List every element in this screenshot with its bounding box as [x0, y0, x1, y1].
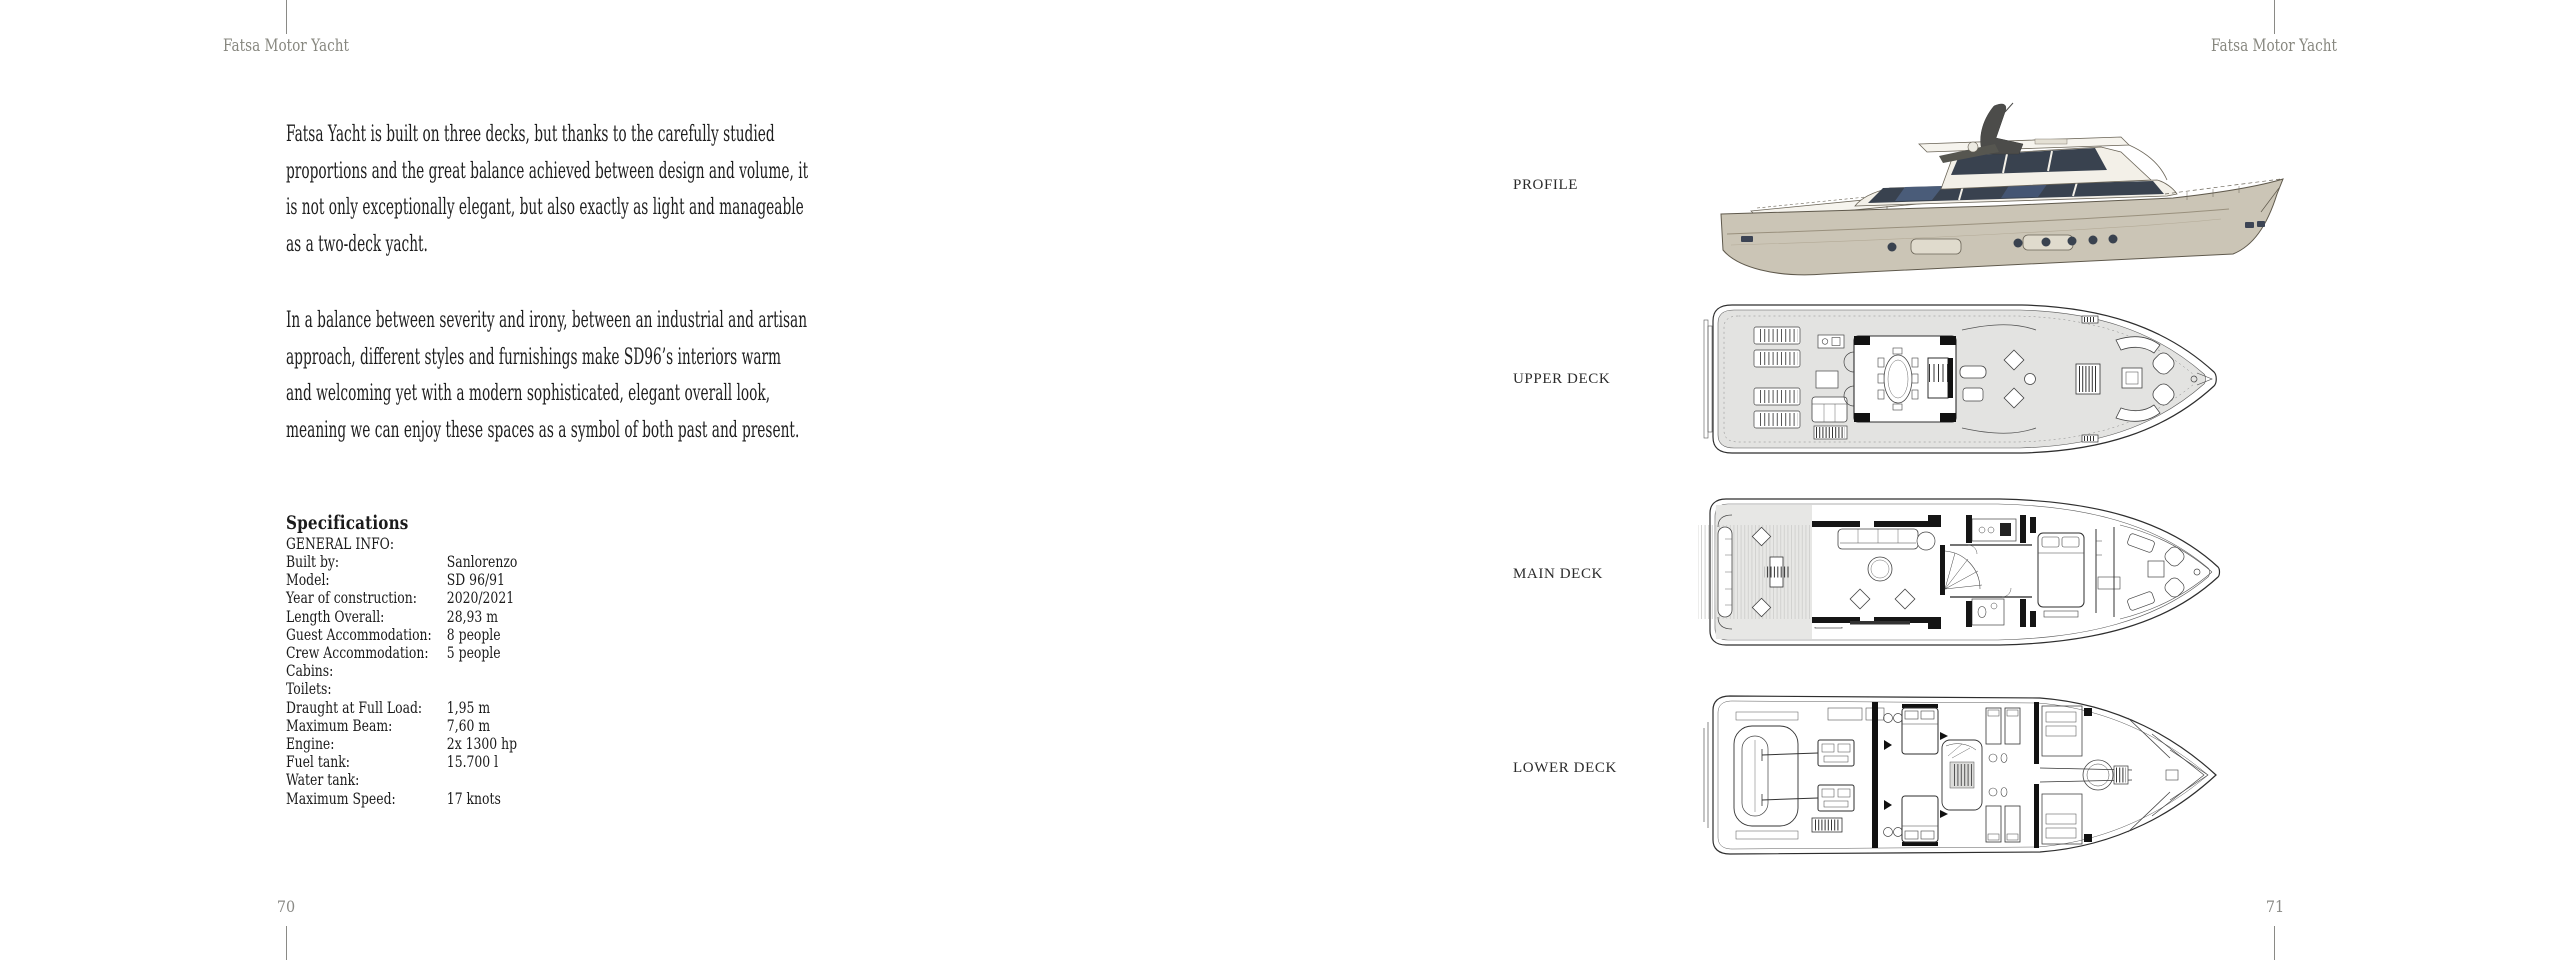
- upper-deck-plan: [1702, 300, 2225, 458]
- spec-row: Water tank:: [286, 771, 517, 789]
- paragraph-2: In a balance between severity and irony,…: [286, 302, 808, 448]
- paragraph-1: Fatsa Yacht is built on three decks, but…: [286, 116, 808, 262]
- spec-row: Draught at Full Load:1,95 m: [286, 699, 517, 717]
- spec-row: Fuel tank:15.700 l: [286, 753, 517, 771]
- spec-value: 2020/2021: [447, 589, 514, 607]
- specifications-title: Specifications: [286, 512, 517, 535]
- spec-value: 8 people: [447, 626, 501, 644]
- spec-row: Maximum Beam:7,60 m: [286, 717, 517, 735]
- spec-label: Water tank:: [286, 771, 447, 789]
- running-header-right: Fatsa Motor Yacht: [2211, 36, 2337, 56]
- spec-row: Model:SD 96/91: [286, 571, 517, 589]
- crop-mark-bottom-left: [286, 926, 287, 960]
- yacht-profile-drawing: [1705, 92, 2290, 288]
- label-lower-deck: LOWER DECK: [1513, 760, 1617, 777]
- label-main-deck: MAIN DECK: [1513, 566, 1603, 583]
- specifications-table: Specifications GENERAL INFO: Built by:Sa…: [286, 512, 517, 808]
- label-profile: PROFILE: [1513, 177, 1578, 194]
- crop-mark-top-right: [2274, 0, 2275, 34]
- spec-label: Engine:: [286, 735, 447, 753]
- spec-label: Built by:: [286, 553, 447, 571]
- spec-value: 28,93 m: [447, 608, 498, 626]
- paragraph-line: and welcoming yet with a modern sophisti…: [286, 375, 808, 412]
- spec-value: 5 people: [447, 644, 501, 662]
- paragraph-line: as a two-deck yacht.: [286, 226, 808, 263]
- spec-row: Guest Accommodation:8 people: [286, 626, 517, 644]
- spec-value: 7,60 m: [447, 717, 490, 735]
- spec-label: Draught at Full Load:: [286, 699, 447, 717]
- paragraph-line: is not only exceptionally elegant, but a…: [286, 189, 808, 226]
- spec-label: Fuel tank:: [286, 753, 447, 771]
- spec-label: Length Overall:: [286, 608, 447, 626]
- spec-row: Length Overall:28,93 m: [286, 608, 517, 626]
- paragraph-line: approach, different styles and furnishin…: [286, 339, 808, 376]
- specifications-section: GENERAL INFO:: [286, 535, 517, 553]
- spec-value: 17 knots: [447, 790, 501, 808]
- paragraph-line: In a balance between severity and irony,…: [286, 302, 808, 339]
- spec-value: 1,95 m: [447, 699, 490, 717]
- spec-label: Model:: [286, 571, 447, 589]
- spec-label: Maximum Speed:: [286, 790, 447, 808]
- spec-row: Toilets:: [286, 680, 517, 698]
- spec-label: Year of construction:: [286, 589, 447, 607]
- spec-label: Toilets:: [286, 680, 447, 698]
- spec-value: 15.700 l: [447, 753, 498, 771]
- spec-row: Built by:Sanlorenzo: [286, 553, 517, 571]
- lower-deck-plan: [1700, 688, 2225, 863]
- spec-row: Maximum Speed:17 knots: [286, 790, 517, 808]
- brochure-spread: { "left_page": { "header": "Fatsa Motor …: [0, 0, 2560, 960]
- spec-value: SD 96/91: [447, 571, 505, 589]
- spec-label: Cabins:: [286, 662, 447, 680]
- paragraph-line: proportions and the great balance achiev…: [286, 153, 808, 190]
- page-number-right: 71: [2266, 897, 2284, 916]
- spec-row: Crew Accommodation:5 people: [286, 644, 517, 662]
- spec-value: 2x 1300 hp: [447, 735, 517, 753]
- crop-mark-top-left: [286, 0, 287, 34]
- running-header-left: Fatsa Motor Yacht: [223, 36, 349, 56]
- spec-row: Engine:2x 1300 hp: [286, 735, 517, 753]
- spec-label: Crew Accommodation:: [286, 644, 447, 662]
- page-number-left: 70: [277, 897, 295, 916]
- body-text: Fatsa Yacht is built on three decks, but…: [286, 116, 808, 448]
- paragraph-line: Fatsa Yacht is built on three decks, but…: [286, 116, 808, 153]
- spec-value: Sanlorenzo: [447, 553, 518, 571]
- spec-row: Year of construction:2020/2021: [286, 589, 517, 607]
- crop-mark-bottom-right: [2274, 926, 2275, 960]
- main-deck-plan: [1700, 493, 2225, 651]
- spec-label: Guest Accommodation:: [286, 626, 447, 644]
- spec-row: Cabins:: [286, 662, 517, 680]
- label-upper-deck: UPPER DECK: [1513, 371, 1610, 388]
- spec-label: Maximum Beam:: [286, 717, 447, 735]
- paragraph-line: meaning we can enjoy these spaces as a s…: [286, 412, 808, 449]
